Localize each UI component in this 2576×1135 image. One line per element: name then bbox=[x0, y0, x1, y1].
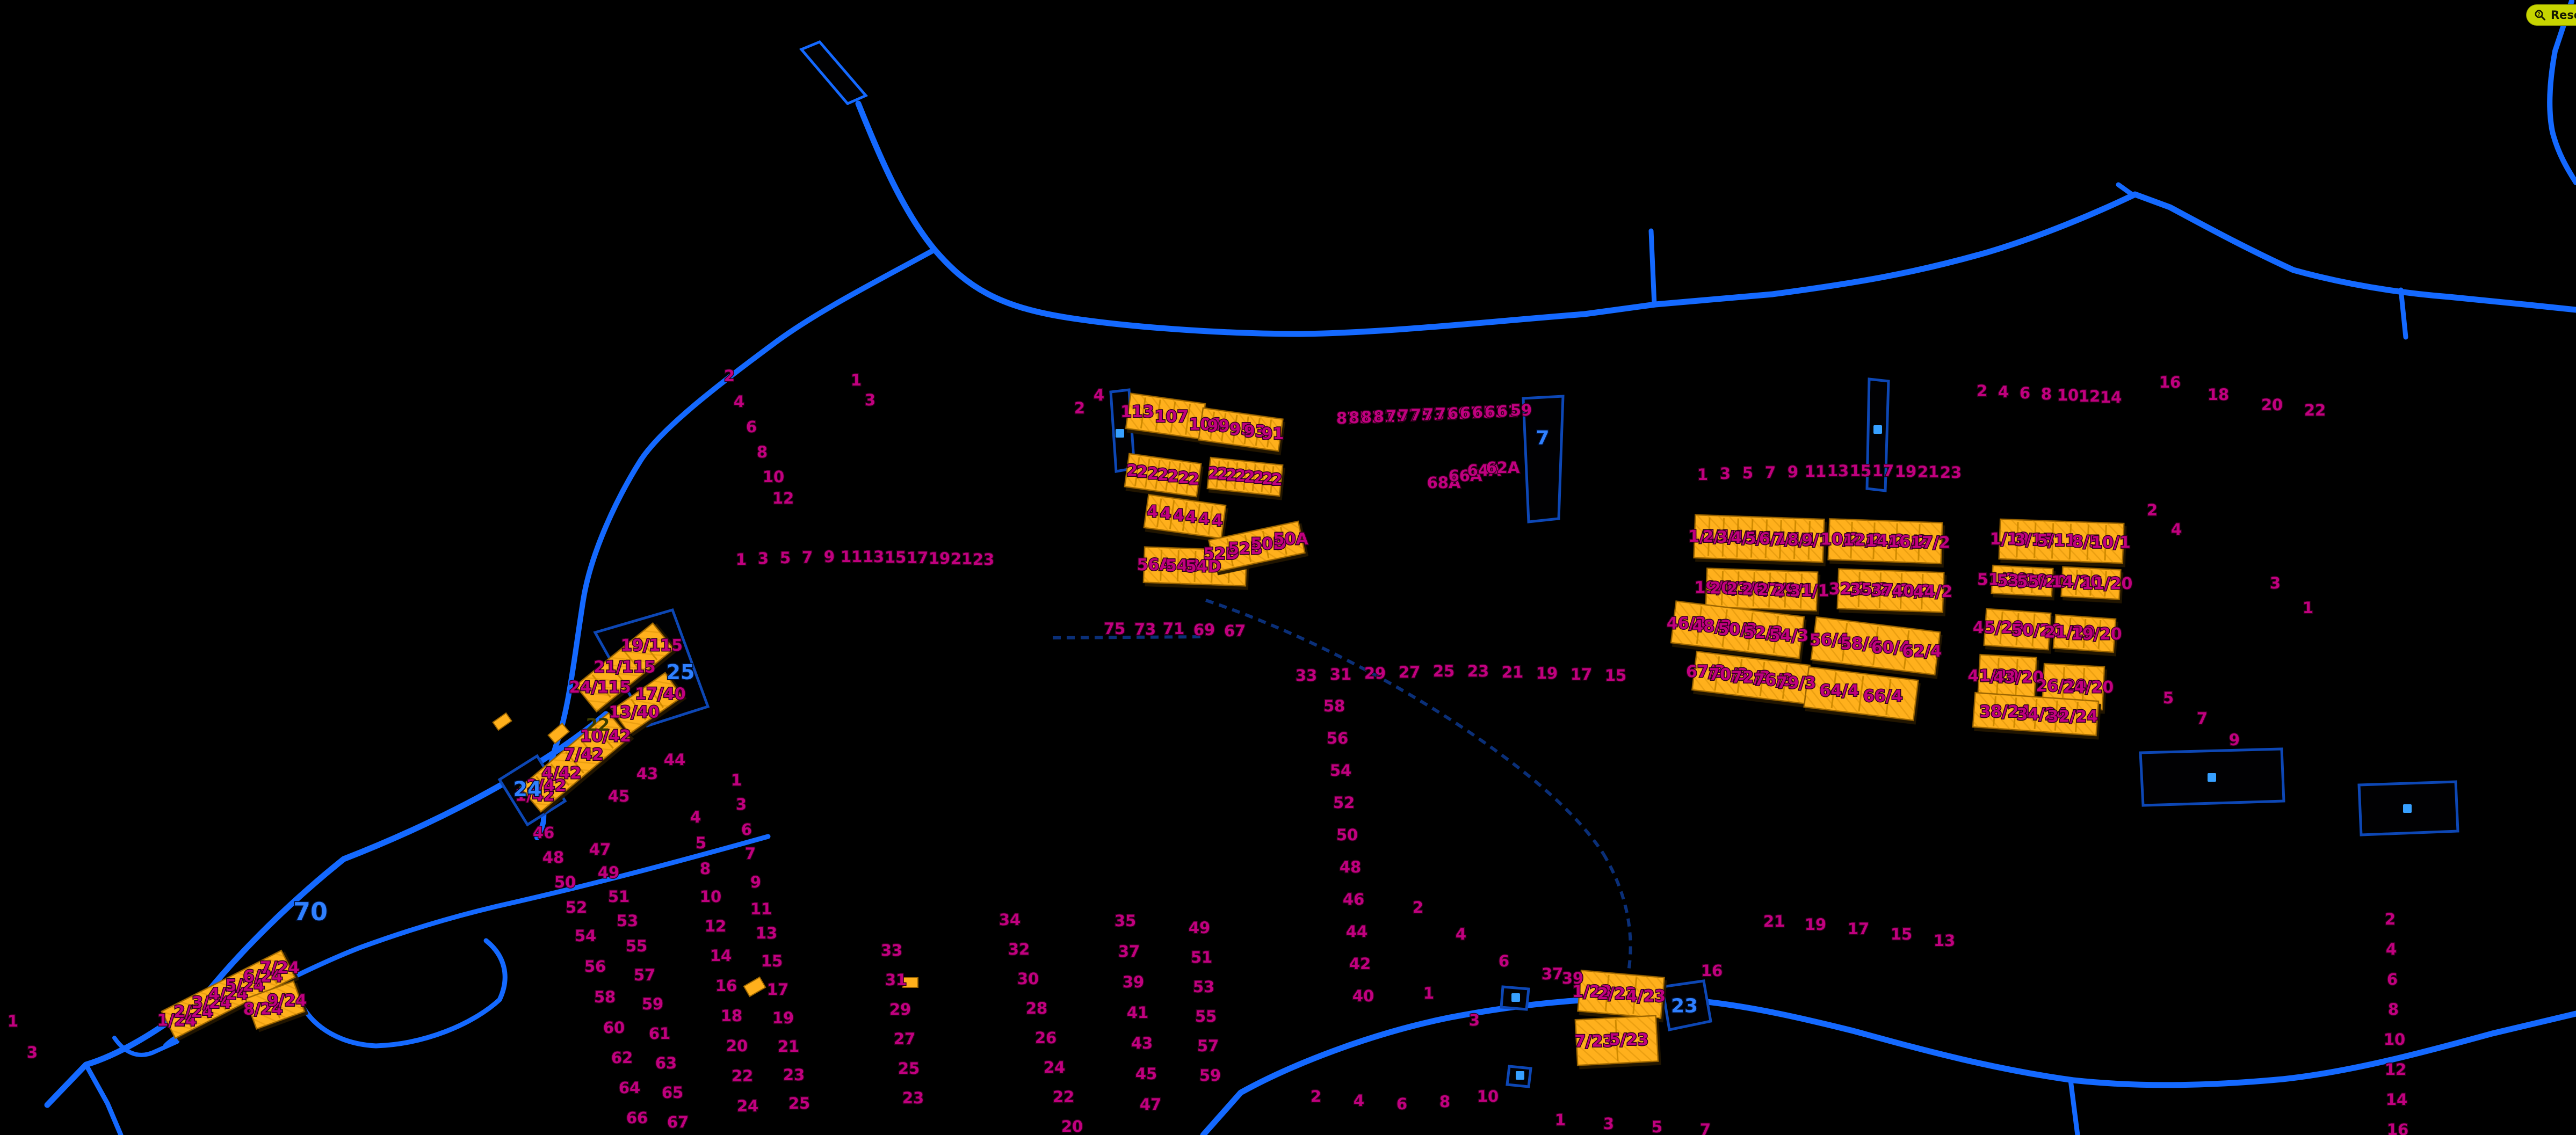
road-top-right[interactable] bbox=[2550, 1, 2576, 183]
address-point[interactable]: 24 bbox=[1044, 1058, 1065, 1076]
address-point[interactable]: 51 bbox=[608, 887, 629, 906]
address-point[interactable]: 46 bbox=[1343, 890, 1364, 908]
address-point[interactable]: 2 bbox=[724, 367, 735, 385]
address-point[interactable]: 20 bbox=[2261, 396, 2283, 414]
blue-number-label: 25 bbox=[667, 660, 695, 684]
house-number-label: 21/115 bbox=[594, 658, 655, 677]
address-point[interactable]: 2 bbox=[1311, 1087, 1321, 1105]
address-point[interactable]: 9 bbox=[2229, 731, 2240, 749]
road-pocket-loop[interactable] bbox=[301, 941, 505, 1046]
house-number-label: 32/24 bbox=[2047, 707, 2098, 726]
address-point[interactable]: 3 bbox=[1469, 1011, 1480, 1029]
address-point[interactable]: 13 bbox=[756, 924, 777, 942]
small-orange-building[interactable] bbox=[493, 713, 512, 730]
address-point[interactable]: 22 bbox=[1053, 1088, 1074, 1106]
address-point[interactable]: 1 bbox=[731, 771, 742, 789]
address-point[interactable]: 8 bbox=[2388, 1000, 2399, 1018]
house-number-label: 54/3 bbox=[1769, 627, 1808, 645]
address-point[interactable]: 51 bbox=[1191, 948, 1212, 966]
address-point[interactable]: 2 bbox=[1413, 898, 1423, 916]
address-point[interactable]: 19 bbox=[1536, 664, 1558, 682]
address-point[interactable]: 5 bbox=[1652, 1118, 1662, 1135]
address-point[interactable]: 13 bbox=[863, 548, 884, 566]
address-point[interactable]: 62A bbox=[1486, 459, 1520, 477]
layer-roads bbox=[47, 1, 2576, 1135]
road-pocket-connector[interactable] bbox=[114, 1038, 177, 1055]
house-number-label: 4 bbox=[1173, 506, 1184, 525]
entrance-dot bbox=[2208, 773, 2216, 782]
address-point[interactable]: 42 bbox=[1349, 955, 1371, 973]
address-point[interactable]: 61 bbox=[649, 1024, 670, 1043]
address-point[interactable]: 10 bbox=[2384, 1030, 2405, 1049]
address-point[interactable]: 17 bbox=[1571, 665, 1592, 683]
address-point[interactable]: 19 bbox=[929, 549, 950, 567]
address-point[interactable]: 75 bbox=[1104, 620, 1125, 638]
address-point[interactable]: 11 bbox=[750, 900, 772, 918]
map-canvas[interactable]: 1131071019995939122222222222222244444456… bbox=[0, 0, 2576, 1135]
house-number-label: 24/20 bbox=[2063, 678, 2114, 697]
address-point[interactable]: 19 bbox=[772, 1009, 794, 1027]
building-stub-road[interactable] bbox=[801, 42, 866, 104]
house-number-label: 2 bbox=[1188, 470, 1199, 489]
address-point[interactable]: 1 bbox=[8, 1012, 18, 1030]
address-point[interactable]: 66 bbox=[626, 1109, 648, 1127]
house-number-label: 2 bbox=[1271, 471, 1283, 490]
address-point[interactable]: 59 bbox=[1510, 401, 1532, 419]
address-point[interactable]: 25 bbox=[898, 1059, 920, 1078]
address-point[interactable]: 5 bbox=[780, 549, 791, 567]
address-point[interactable]: 22 bbox=[732, 1067, 753, 1085]
house-number-label: 91 bbox=[1262, 425, 1284, 443]
address-point[interactable]: 6 bbox=[2020, 384, 2030, 402]
address-point[interactable]: 7 bbox=[1765, 463, 1776, 482]
layer-orange-buildings bbox=[162, 394, 2124, 1066]
address-point[interactable]: 23 bbox=[783, 1066, 805, 1084]
address-point[interactable]: 4 bbox=[734, 392, 744, 411]
house-number-label: 62/4 bbox=[1902, 642, 1942, 661]
address-point[interactable]: 41 bbox=[1127, 1003, 1148, 1022]
house-number-label: 4 bbox=[1160, 504, 1171, 523]
address-point[interactable]: 63 bbox=[655, 1054, 677, 1072]
house-number-label: 11/20 bbox=[2082, 574, 2132, 593]
address-point[interactable]: 4 bbox=[1456, 925, 1466, 943]
resource-search-label: Resource bbox=[2551, 9, 2576, 21]
house-number-label: 4 bbox=[1185, 508, 1197, 527]
address-point[interactable]: 20 bbox=[726, 1037, 748, 1055]
house-number-label: 113 bbox=[1120, 403, 1154, 421]
small-orange-body bbox=[493, 713, 512, 730]
address-point[interactable]: 39 bbox=[1562, 969, 1583, 987]
address-point[interactable]: 54 bbox=[575, 927, 596, 945]
address-point[interactable]: 45 bbox=[1135, 1065, 1157, 1083]
road-bottom-branch[interactable] bbox=[2071, 1080, 2078, 1135]
address-point[interactable]: 50 bbox=[554, 873, 576, 891]
address-point[interactable]: 73 bbox=[1134, 620, 1156, 638]
address-point[interactable]: 16 bbox=[2387, 1121, 2408, 1135]
address-point[interactable]: 4 bbox=[1998, 383, 2009, 401]
address-point[interactable]: 1 bbox=[736, 550, 747, 569]
address-point[interactable]: 55 bbox=[1195, 1007, 1217, 1025]
address-point[interactable]: 9 bbox=[824, 548, 835, 566]
address-point[interactable]: 3 bbox=[1720, 464, 1731, 483]
house-number-label: 10/1 bbox=[2091, 534, 2131, 552]
house-number-label: 107 bbox=[1155, 408, 1189, 426]
small-orange-body bbox=[744, 977, 765, 996]
address-point[interactable]: 31 bbox=[1330, 665, 1351, 683]
address-point[interactable]: 15 bbox=[761, 952, 783, 970]
address-point[interactable]: 21 bbox=[1763, 912, 1785, 930]
address-point[interactable]: 3 bbox=[736, 795, 747, 813]
address-point[interactable]: 69 bbox=[1193, 621, 1215, 639]
address-point[interactable]: 33 bbox=[881, 941, 902, 959]
address-point[interactable]: 21 bbox=[778, 1037, 799, 1056]
address-point[interactable]: 10 bbox=[700, 887, 721, 906]
road-spur-small[interactable] bbox=[2118, 185, 2133, 195]
address-point[interactable]: 50 bbox=[1336, 826, 1358, 844]
address-point[interactable]: 71 bbox=[1163, 620, 1184, 638]
address-point[interactable]: 5 bbox=[2163, 689, 2174, 707]
address-point[interactable]: 37 bbox=[1542, 965, 1563, 983]
address-point[interactable]: 6 bbox=[2387, 970, 2398, 988]
house-number-label: 79/3 bbox=[1776, 674, 1816, 693]
address-point[interactable]: 55 bbox=[626, 937, 647, 955]
address-point[interactable]: 10 bbox=[2057, 386, 2079, 404]
entrance-dot bbox=[1511, 993, 1520, 1002]
address-point[interactable]: 1 bbox=[1555, 1111, 1566, 1129]
address-point[interactable]: 26 bbox=[1035, 1029, 1057, 1047]
address-point[interactable]: 15 bbox=[885, 548, 906, 566]
road-bottom-curve[interactable] bbox=[1203, 998, 2576, 1135]
house-number-label: 5/11 bbox=[2037, 532, 2076, 550]
address-point[interactable]: 47 bbox=[1140, 1095, 1161, 1114]
entrance-dot bbox=[1516, 1071, 1524, 1080]
address-point[interactable]: 8 bbox=[1439, 1093, 1450, 1111]
address-point[interactable]: 3 bbox=[27, 1043, 38, 1061]
house-number-label: 64/4 bbox=[1820, 682, 1859, 701]
address-point[interactable]: 3 bbox=[1603, 1115, 1614, 1133]
address-point[interactable]: 65 bbox=[662, 1083, 683, 1102]
address-point[interactable]: 3 bbox=[2270, 574, 2281, 592]
address-point[interactable]: 21 bbox=[1502, 663, 1523, 681]
address-point[interactable]: 10 bbox=[763, 468, 784, 486]
address-point[interactable]: 1 bbox=[851, 371, 862, 389]
address-point[interactable]: 49 bbox=[1189, 919, 1210, 937]
address-point[interactable]: 13 bbox=[1827, 462, 1849, 480]
small-orange-building[interactable] bbox=[548, 723, 569, 743]
address-point[interactable]: 52 bbox=[566, 898, 587, 916]
address-point[interactable]: 34 bbox=[999, 911, 1021, 929]
address-point[interactable]: 6 bbox=[1396, 1095, 1407, 1113]
address-point[interactable]: 15 bbox=[1850, 462, 1871, 480]
address-point[interactable]: 1 bbox=[1423, 984, 1434, 1002]
address-point[interactable]: 3 bbox=[865, 391, 875, 409]
address-point[interactable]: 59 bbox=[1199, 1066, 1221, 1085]
address-point[interactable]: 27 bbox=[1399, 663, 1420, 681]
road-spur-north[interactable] bbox=[1651, 231, 1654, 304]
address-point[interactable]: 16 bbox=[1701, 962, 1723, 980]
address-point[interactable]: 15 bbox=[1891, 925, 1912, 943]
address-point[interactable]: 5 bbox=[696, 834, 706, 852]
address-point[interactable]: 2 bbox=[1074, 399, 1085, 417]
address-point[interactable]: 43 bbox=[636, 765, 658, 783]
address-point[interactable]: 57 bbox=[634, 966, 655, 984]
address-point[interactable]: 25 bbox=[1433, 662, 1455, 680]
address-point[interactable]: 64 bbox=[619, 1079, 640, 1097]
address-point[interactable]: 1 bbox=[2303, 599, 2313, 617]
address-point[interactable]: 45 bbox=[608, 787, 629, 805]
address-point[interactable]: 8 bbox=[700, 860, 711, 878]
address-point[interactable]: 17 bbox=[767, 980, 788, 999]
address-point[interactable]: 58 bbox=[1323, 697, 1345, 715]
house-number-label: 4/42 bbox=[541, 764, 581, 783]
address-point[interactable]: 23 bbox=[902, 1089, 924, 1107]
address-point[interactable]: 25 bbox=[788, 1094, 810, 1112]
house-number-label: 99 bbox=[1207, 417, 1230, 436]
address-point[interactable]: 13 bbox=[1934, 932, 1955, 950]
house-number-label: 50A bbox=[1273, 530, 1309, 549]
address-point[interactable]: 23 bbox=[973, 550, 994, 569]
house-number-label: 5/23 bbox=[1609, 1030, 1649, 1049]
address-point[interactable]: 4 bbox=[690, 808, 701, 826]
address-point[interactable]: 7 bbox=[1700, 1121, 1711, 1135]
address-point[interactable]: 4 bbox=[2171, 520, 2182, 539]
address-point[interactable]: 35 bbox=[1115, 912, 1136, 930]
layer-labels: 1131071019995939122222222222222244444456… bbox=[157, 403, 2412, 1080]
address-point[interactable]: 23 bbox=[1467, 662, 1489, 680]
address-point[interactable]: 4 bbox=[1354, 1092, 1364, 1110]
address-point[interactable]: 47 bbox=[589, 840, 611, 858]
address-point[interactable]: 18 bbox=[721, 1007, 742, 1025]
address-point[interactable]: 28 bbox=[1026, 999, 1047, 1017]
address-point[interactable]: 30 bbox=[1017, 970, 1039, 988]
layer-paths bbox=[1053, 600, 1631, 977]
address-point[interactable]: 48 bbox=[542, 848, 564, 867]
road-main-top[interactable] bbox=[858, 104, 2576, 334]
address-point[interactable]: 59 bbox=[642, 995, 663, 1013]
address-point[interactable]: 6 bbox=[1499, 952, 1509, 970]
address-point[interactable]: 11 bbox=[841, 548, 862, 566]
address-point[interactable]: 14 bbox=[2100, 388, 2122, 406]
address-point[interactable]: 20 bbox=[1061, 1117, 1083, 1135]
address-point[interactable]: 4 bbox=[1094, 386, 1104, 404]
house-number-label: 9/24 bbox=[267, 991, 307, 1010]
house-number-label: 4/23 bbox=[1626, 987, 1666, 1006]
address-point[interactable]: 17 bbox=[1872, 462, 1894, 480]
blue-number-label: 23 bbox=[1671, 995, 1698, 1017]
address-point[interactable]: 8 bbox=[757, 443, 768, 461]
address-point[interactable]: 18 bbox=[2208, 385, 2229, 404]
address-point[interactable]: 22 bbox=[2304, 401, 2326, 419]
address-point[interactable]: 56 bbox=[1327, 729, 1348, 747]
address-point[interactable]: 53 bbox=[617, 912, 638, 930]
plot-number-label: 22 bbox=[586, 715, 610, 735]
address-point[interactable]: 11 bbox=[1805, 462, 1826, 481]
address-point[interactable]: 2 bbox=[2385, 910, 2396, 928]
address-point[interactable]: 44 bbox=[664, 751, 685, 769]
road-sw-branch[interactable] bbox=[86, 1065, 121, 1135]
house-number-label: 19/20 bbox=[2071, 625, 2122, 644]
address-point[interactable]: 21 bbox=[951, 550, 972, 568]
address-point[interactable]: 15 bbox=[1605, 666, 1626, 685]
house-number-label: 17/40 bbox=[635, 685, 685, 703]
map-viewport[interactable]: 1131071019995939122222222222222244444456… bbox=[0, 0, 2576, 1135]
house-number-label: 4 bbox=[1212, 512, 1223, 530]
house-number-label: 2 bbox=[1167, 467, 1178, 486]
path-dashed-center[interactable] bbox=[1206, 600, 1603, 854]
address-point[interactable]: 19 bbox=[1805, 915, 1826, 934]
address-point[interactable]: 2 bbox=[2147, 501, 2158, 519]
house-number-label: 17/2 bbox=[1911, 533, 1950, 552]
address-point[interactable]: 1 bbox=[1697, 465, 1708, 484]
address-point[interactable]: 2 bbox=[1977, 382, 1987, 400]
address-point[interactable]: 56 bbox=[584, 957, 606, 976]
house-number-label: 66/4 bbox=[1863, 687, 1903, 705]
address-point[interactable]: 6 bbox=[741, 820, 752, 839]
search-icon: ? bbox=[2534, 9, 2546, 21]
address-point[interactable]: 49 bbox=[598, 863, 619, 882]
house-number-label: 4 bbox=[1147, 503, 1158, 521]
address-point[interactable]: 52 bbox=[1333, 794, 1355, 812]
entrance-dot bbox=[2403, 804, 2412, 813]
entrance-dot bbox=[1116, 429, 1124, 438]
address-point[interactable]: 33 bbox=[1296, 666, 1317, 685]
address-point[interactable]: 12 bbox=[772, 489, 794, 507]
address-point[interactable]: 57 bbox=[1197, 1037, 1219, 1055]
small-orange-building[interactable] bbox=[744, 977, 765, 996]
address-point[interactable]: 12 bbox=[705, 917, 726, 935]
address-point[interactable]: 5 bbox=[1742, 464, 1753, 482]
address-point[interactable]: 58 bbox=[594, 988, 616, 1006]
address-point[interactable]: 40 bbox=[1352, 987, 1374, 1005]
house-number-label: 7/42 bbox=[564, 746, 604, 765]
address-point[interactable]: 7 bbox=[2197, 709, 2208, 727]
entrance-dot bbox=[1873, 425, 1882, 434]
road-spur-south[interactable] bbox=[2401, 290, 2406, 337]
address-point[interactable]: 39 bbox=[1123, 973, 1144, 991]
address-point[interactable]: 17 bbox=[1848, 920, 1869, 938]
blue-number-label: 7 bbox=[1536, 427, 1549, 449]
house-number-label: 31/1 bbox=[1790, 582, 1829, 601]
address-point[interactable]: 14 bbox=[710, 947, 732, 965]
address-point[interactable]: 27 bbox=[894, 1030, 915, 1048]
layer-dark-buildings bbox=[500, 42, 2458, 1087]
address-point[interactable]: 29 bbox=[1364, 664, 1386, 682]
address-point[interactable]: 16 bbox=[2159, 373, 2181, 391]
path-dashed-south[interactable] bbox=[1603, 854, 1631, 977]
address-point[interactable]: 32 bbox=[1008, 940, 1030, 958]
address-point[interactable]: 9 bbox=[750, 873, 761, 891]
address-point[interactable]: 24 bbox=[737, 1097, 758, 1115]
house-number-label: 13/40 bbox=[609, 703, 659, 722]
address-point[interactable]: 53 bbox=[1193, 978, 1214, 996]
house-number-label: 2 bbox=[1137, 463, 1148, 482]
address-point[interactable]: 67 bbox=[667, 1113, 689, 1131]
address-point[interactable]: 54 bbox=[1330, 761, 1351, 780]
address-point[interactable]: 3 bbox=[758, 549, 769, 567]
address-point[interactable]: 7 bbox=[802, 548, 813, 566]
address-point[interactable]: 31 bbox=[885, 971, 907, 989]
address-point[interactable]: 62 bbox=[611, 1049, 633, 1067]
house-number-label: 7/23 bbox=[1574, 1032, 1614, 1051]
address-point[interactable]: 21 bbox=[1917, 463, 1939, 481]
house-number-label: 19/115 bbox=[621, 636, 683, 655]
address-point[interactable]: 46 bbox=[533, 824, 554, 842]
small-orange-body bbox=[548, 723, 569, 743]
house-number-label: 7/24 bbox=[260, 959, 300, 978]
address-point[interactable]: 12 bbox=[2385, 1060, 2406, 1079]
house-number-label: 44/2 bbox=[1913, 583, 1953, 601]
address-point[interactable]: 12 bbox=[2079, 387, 2100, 405]
resource-search-button[interactable]: ? Resource bbox=[2527, 5, 2576, 25]
house-number-label: 24/115 bbox=[569, 678, 631, 697]
address-point[interactable]: 60 bbox=[603, 1018, 625, 1037]
address-point[interactable]: 67 bbox=[1224, 622, 1246, 640]
address-point[interactable]: 4 bbox=[2386, 940, 2397, 958]
address-point[interactable]: 6 bbox=[746, 418, 757, 436]
blue-number-label: 70 bbox=[293, 897, 328, 926]
svg-text:?: ? bbox=[2537, 12, 2540, 18]
address-point[interactable]: 14 bbox=[2386, 1090, 2407, 1109]
address-point[interactable]: 43 bbox=[1131, 1034, 1153, 1052]
address-point[interactable]: 44 bbox=[1346, 922, 1367, 941]
address-point[interactable]: 7 bbox=[745, 845, 756, 863]
address-point[interactable]: 10 bbox=[1477, 1087, 1499, 1105]
address-point[interactable]: 8 bbox=[2041, 385, 2052, 403]
address-point[interactable]: 48 bbox=[1340, 858, 1361, 876]
address-point[interactable]: 19 bbox=[1895, 462, 1916, 481]
address-point[interactable]: 16 bbox=[715, 977, 737, 995]
house-number-label: 4 bbox=[1198, 510, 1210, 529]
address-point[interactable]: 29 bbox=[889, 1000, 911, 1018]
blue-number-label: 24 bbox=[513, 777, 542, 801]
address-point[interactable]: 17 bbox=[907, 549, 928, 567]
address-point[interactable]: 23 bbox=[1940, 463, 1962, 482]
address-point[interactable]: 37 bbox=[1118, 942, 1140, 961]
address-point[interactable]: 9 bbox=[1788, 463, 1798, 481]
